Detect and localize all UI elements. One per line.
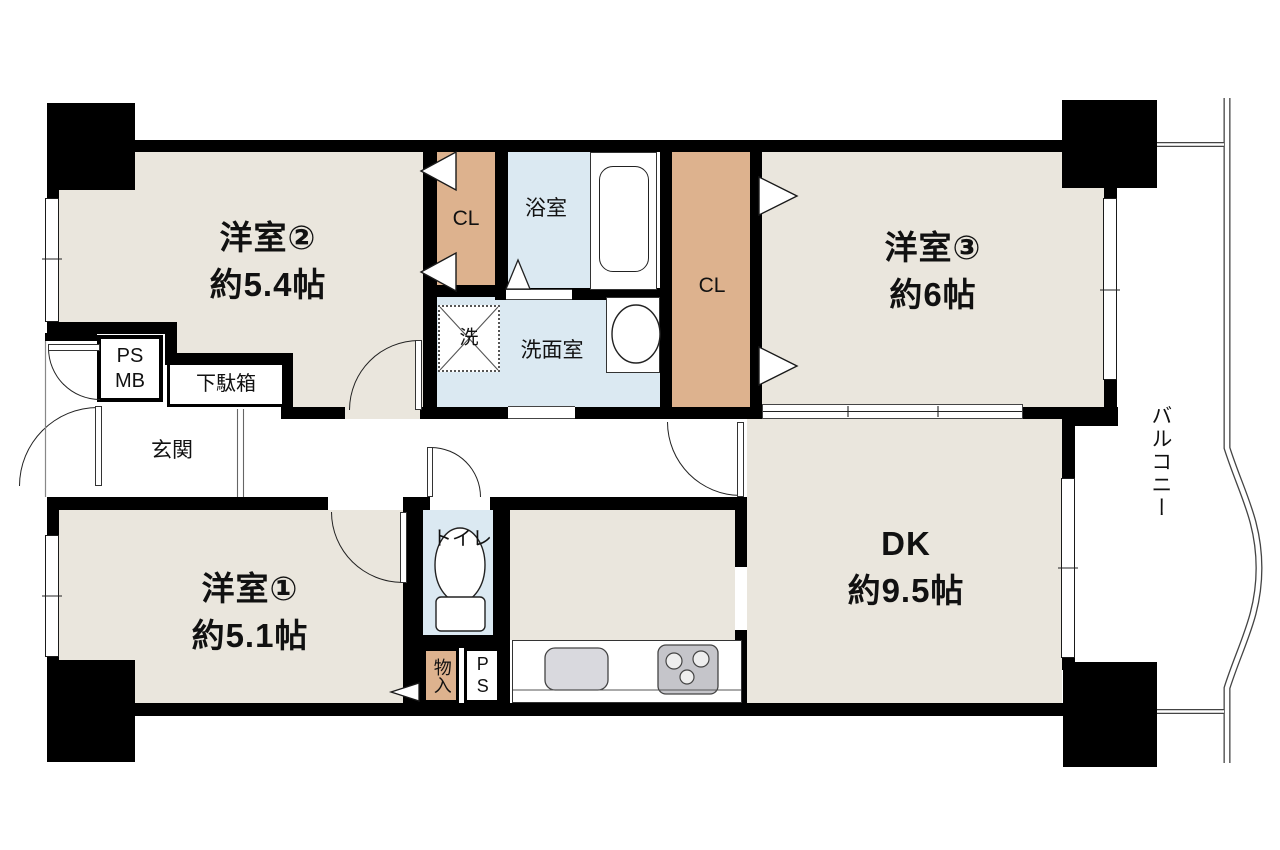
label-washer: 洗	[459, 326, 478, 353]
label-ps-mb: PS MB	[115, 344, 145, 394]
label-mb-line: MB	[115, 369, 145, 394]
label-western2: 洋室② 約5.4帖	[210, 215, 327, 309]
wall-dk-east	[1062, 419, 1075, 478]
sliding-door-bathroom	[506, 289, 572, 300]
door-leaf-western1	[400, 512, 407, 583]
wall-segment	[750, 140, 762, 419]
window-western2	[45, 198, 59, 322]
door-arc-entrance	[19, 407, 98, 486]
window-western3	[1103, 198, 1117, 380]
room-name: 洋室②	[210, 215, 327, 262]
wall-segment	[660, 140, 672, 419]
wall-hall-south	[59, 497, 328, 510]
room-size: 約5.4帖	[210, 262, 327, 309]
room-name: 洋室①	[192, 566, 309, 613]
wall-bottom	[135, 703, 1065, 716]
label-entrance: 玄関	[151, 436, 193, 466]
label-shoe-cabinet: 下駄箱	[196, 370, 256, 398]
door-arc-dk	[667, 422, 741, 496]
kitchen-floor	[510, 508, 735, 640]
door-leaf-entrance	[95, 406, 102, 486]
wall-toilet-south	[423, 635, 493, 648]
label-dk: DK 約9.5帖	[848, 521, 965, 615]
wall-hall-south	[490, 497, 747, 510]
pillar-top-left	[47, 103, 135, 190]
wall-hall-south	[403, 497, 430, 510]
label-ps-line: PS	[115, 344, 145, 369]
door-arc-entrance-inner	[48, 348, 100, 400]
room-size: 約9.5帖	[848, 568, 965, 615]
label-closet-east: CL	[699, 271, 726, 301]
label-washroom: 洗面室	[521, 336, 584, 366]
window-western1	[45, 535, 59, 657]
wall-room3-south	[745, 407, 762, 419]
label-closet-west: CL	[453, 204, 480, 234]
label-western3: 洋室③ 約6帖	[885, 225, 982, 319]
door-arc-toilet	[431, 447, 481, 497]
bathtub	[599, 166, 649, 272]
window-dk	[1061, 478, 1075, 658]
sliding-door-room3-dk	[762, 404, 1023, 419]
label-balcony: バルコニー	[1145, 405, 1175, 520]
door-leaf-toilet	[427, 447, 433, 497]
door-leaf-entrance-inner	[48, 344, 100, 351]
label-pipe-shaft: PS	[469, 654, 495, 698]
kitchen-counter	[512, 640, 742, 703]
room-size: 約6帖	[885, 272, 982, 319]
wall-segment	[423, 140, 437, 419]
washbasin-counter	[606, 297, 660, 373]
label-western1: 洋室① 約5.1帖	[192, 566, 309, 660]
door-leaf-western2	[415, 340, 422, 410]
wall-kitchen-dk	[735, 510, 747, 567]
wall-room3-east	[1104, 188, 1117, 198]
pillar-bottom-left	[47, 660, 135, 762]
room-name: 洋室③	[885, 225, 982, 272]
room-name: DK	[848, 521, 965, 568]
room-size: 約5.1帖	[192, 613, 309, 660]
pillar-bottom-right	[1063, 662, 1157, 767]
label-bathroom: 浴室	[525, 194, 567, 224]
door-leaf-dk	[737, 422, 744, 497]
pillar-top-right	[1062, 100, 1157, 188]
wall-top	[47, 140, 1157, 152]
wall-hall-north	[293, 407, 345, 419]
wall-left	[47, 497, 59, 535]
wall-entrance-recess-top	[45, 333, 97, 341]
wall-segment	[59, 322, 170, 334]
floor-plan: 洋室② 約5.4帖 洋室③ 約6帖 洋室① 約5.1帖 DK 約9.5帖 浴室 …	[0, 0, 1280, 850]
wall-segment	[495, 152, 508, 288]
wall-room3-east	[1104, 380, 1117, 419]
label-storage: 物入	[428, 658, 454, 694]
sliding-door-washroom	[508, 406, 575, 419]
label-toilet: トイレ	[432, 525, 492, 553]
